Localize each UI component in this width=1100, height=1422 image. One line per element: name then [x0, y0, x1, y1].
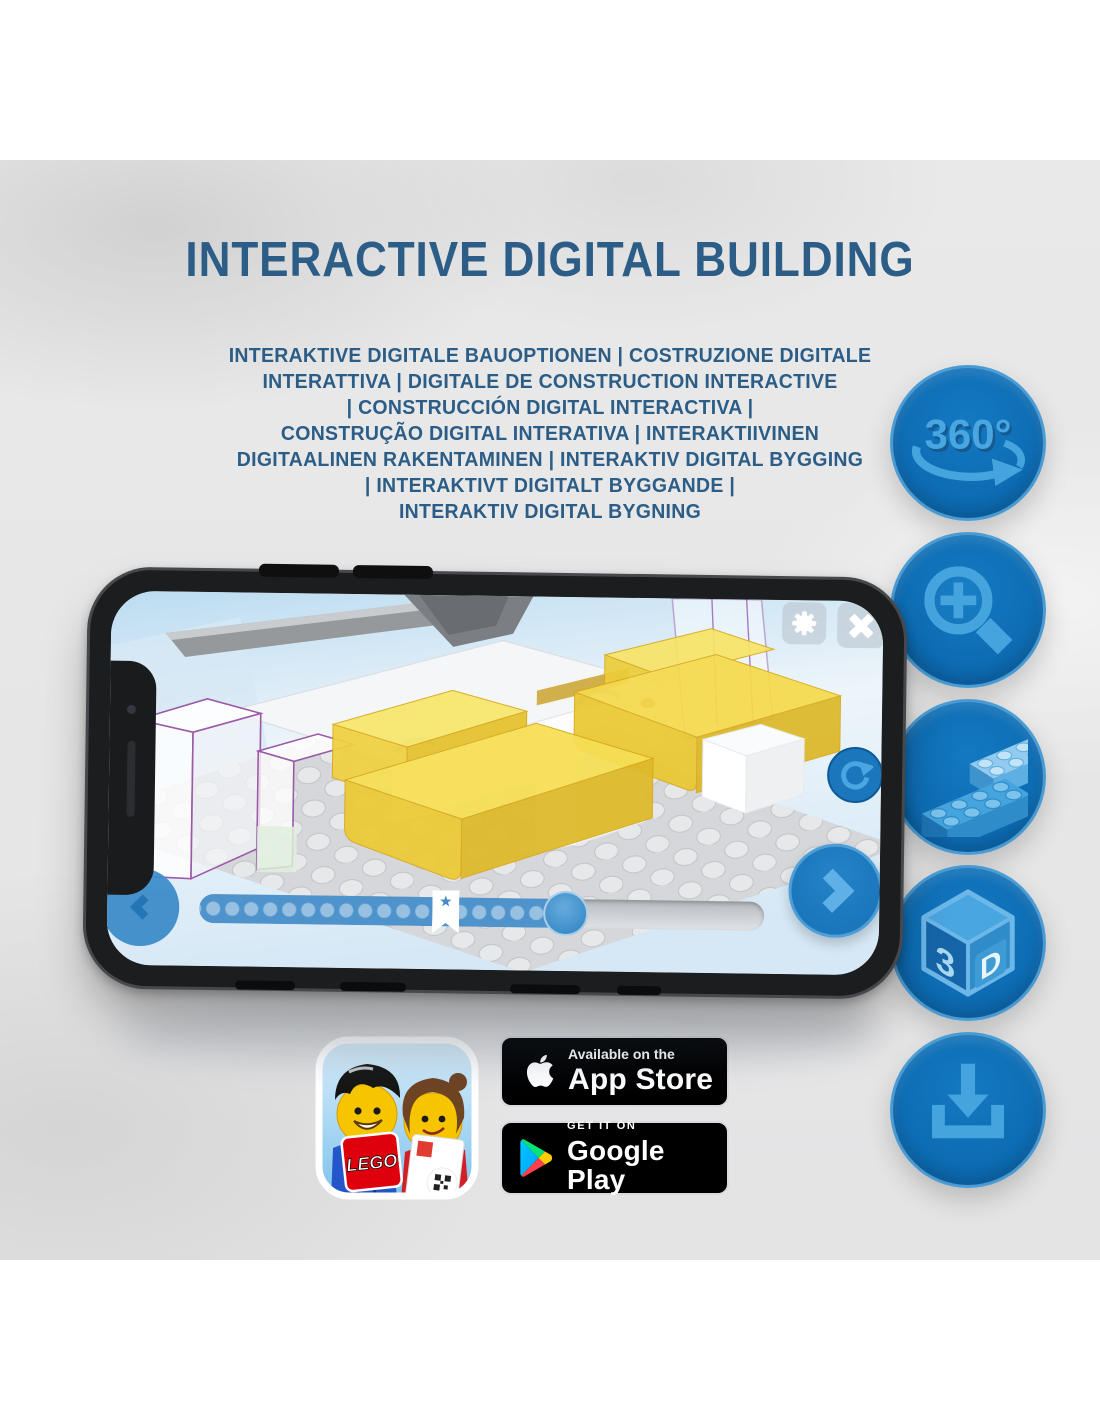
earpiece-speaker: [126, 741, 135, 817]
speaker-port: [510, 984, 580, 994]
feature-brick: [890, 699, 1046, 855]
subtitle-line: INTERATTIVA | DIGITALE DE CONSTRUCTION I…: [51, 369, 1049, 395]
360-rotation-icon: 360° 360°: [904, 379, 1032, 507]
phone-mockup: ★: [82, 566, 908, 999]
phone-surface-reflection: [120, 998, 880, 1068]
page: INTERACTIVE DIGITAL BUILDING INTERAKTIVE…: [0, 0, 1100, 1422]
speaker-port: [235, 980, 295, 990]
google-play-tagline: GET IT ON: [567, 1121, 727, 1133]
feature-360-rotation: 360° 360°: [890, 365, 1046, 521]
front-camera: [127, 705, 136, 714]
feature-zoom: [890, 532, 1046, 688]
feature-3d-view: 3 D: [890, 865, 1046, 1021]
rotate-icon: [837, 757, 873, 793]
progress-fill: [199, 894, 574, 928]
svg-text:360°: 360°: [925, 410, 1012, 457]
google-play-icon: [517, 1136, 554, 1180]
close-icon: [845, 609, 877, 641]
google-play-label: Google Play: [567, 1136, 727, 1195]
star-icon: ★: [439, 890, 453, 914]
subtitle-line: INTERAKTIV DIGITAL BYGNING: [51, 499, 1049, 525]
gear-icon: [789, 608, 819, 638]
speaker-port: [617, 986, 661, 996]
phone-notch: [107, 661, 156, 896]
subtitle-line: INTERAKTIVE DIGITALE BAUOPTIONEN | COSTR…: [51, 343, 1049, 369]
settings-button[interactable]: [782, 602, 827, 645]
3d-cube-icon: 3 D: [909, 884, 1027, 1002]
page-title: INTERACTIVE DIGITAL BUILDING: [55, 232, 1045, 288]
lego-brick-icon: [908, 717, 1028, 837]
feature-download: [890, 1032, 1046, 1188]
magnifier-plus-icon: [913, 555, 1023, 665]
chevron-left-icon: [125, 892, 155, 922]
chevron-right-icon: [812, 867, 859, 914]
app-store-label: App Store: [568, 1064, 713, 1096]
download-icon: [914, 1056, 1022, 1164]
close-button[interactable]: [837, 603, 884, 649]
volume-button: [353, 565, 433, 579]
google-play-badge[interactable]: GET IT ON Google Play: [500, 1121, 729, 1195]
volume-button: [259, 564, 339, 578]
phone-screen: ★: [106, 591, 883, 976]
speaker-port: [340, 982, 406, 992]
